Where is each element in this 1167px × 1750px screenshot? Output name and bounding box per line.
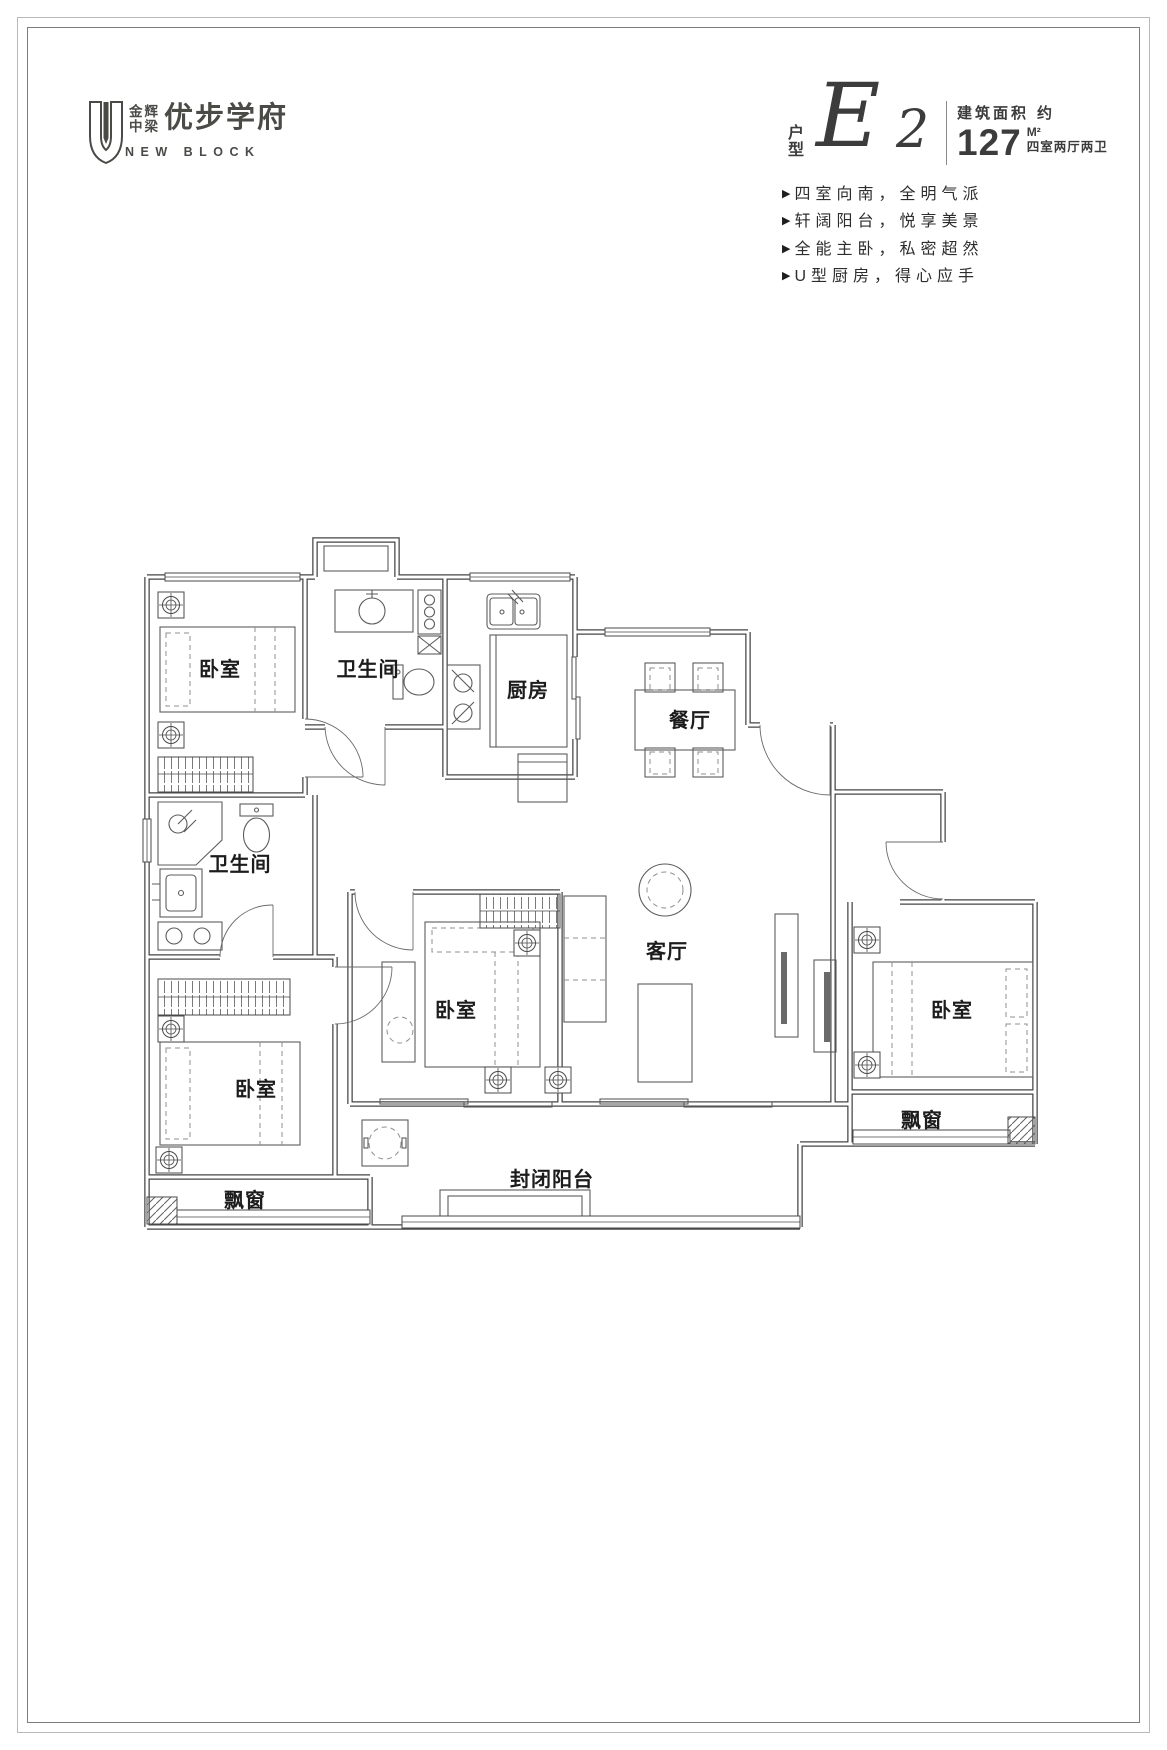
unit-number: 2: [896, 100, 929, 160]
area-label: 建筑面积约: [957, 102, 1108, 123]
tv-cabinet: [775, 914, 836, 1052]
brand-name-top: 金辉: [129, 104, 160, 119]
logo-u-shield-icon: [88, 101, 124, 170]
brand-name-bottom: 中梁: [129, 119, 160, 134]
wardrobe: [480, 894, 560, 928]
desk-chair: [382, 962, 415, 1062]
area-unit: M²: [1027, 126, 1108, 139]
planter: [639, 864, 691, 916]
bathroom-top-fixtures: [335, 590, 441, 699]
wardrobe: [158, 979, 290, 1015]
feature-item: ▶U型厨房，得心应手: [782, 263, 983, 290]
header-divider: [946, 101, 947, 165]
triangle-bullet-icon: ▶: [782, 181, 790, 208]
room-label-living: 客厅: [645, 939, 688, 963]
room-label-dining: 餐厅: [669, 708, 711, 732]
triangle-bullet-icon: ▶: [782, 263, 790, 290]
room-label-bedroom-top-left: 卧室: [199, 657, 241, 681]
brand-logo: 金辉 中梁 优步学府 NEW BLOCK: [88, 101, 348, 171]
room-label-bay-window-right: 飘窗: [901, 1108, 943, 1132]
bathroom-left-fixtures: [152, 802, 273, 950]
project-subtitle: NEW BLOCK: [125, 145, 261, 159]
room-label-bay-window-left: 飘窗: [224, 1188, 266, 1212]
room-label-balcony: 封闭阳台: [510, 1167, 594, 1191]
rug: [638, 984, 692, 1082]
feature-item: ▶轩阔阳台，悦享美景: [782, 208, 983, 235]
washing-machine: [362, 1120, 408, 1166]
feature-item: ▶全能主卧，私密超然: [782, 236, 983, 263]
flue-box: [324, 546, 388, 571]
layout-description: 四室两厅两卫: [1027, 140, 1108, 154]
feature-item: ▶四室向南，全明气派: [782, 181, 983, 208]
unit-header: 户 型 E 2 建筑面积约 127 M² 四室两厅两卫: [778, 88, 1118, 173]
sofa: [564, 896, 606, 1022]
unit-type-prefix: 户 型: [788, 125, 804, 159]
room-label-bathroom-left: 卫生间: [209, 853, 272, 876]
floor-plan-drawing: 卧室 卫生间 厨房 餐厅 卫生间 卧室 客厅 卧室 卧室 飘窗 飘窗 封闭阳台: [140, 532, 1040, 1242]
project-name: 优步学府: [164, 101, 288, 135]
feature-list: ▶四室向南，全明气派 ▶轩阔阳台，悦享美景 ▶全能主卧，私密超然 ▶U型厨房，得…: [782, 181, 983, 291]
unit-letter: E: [816, 66, 880, 166]
room-label-bedroom-right: 卧室: [931, 998, 973, 1022]
triangle-bullet-icon: ▶: [782, 208, 790, 235]
wardrobe: [158, 757, 253, 792]
room-label-bedroom-bottom-left: 卧室: [235, 1077, 277, 1101]
room-label-bathroom-top: 卫生间: [337, 658, 400, 681]
unit-info: 建筑面积约 127 M² 四室两厅两卫: [957, 102, 1108, 160]
area-value: 127: [957, 126, 1022, 160]
floorplan-page: 金辉 中梁 优步学府 NEW BLOCK 户 型 E 2 建筑面积约 127 M…: [0, 0, 1167, 1750]
bed: [160, 1042, 300, 1145]
triangle-bullet-icon: ▶: [782, 236, 790, 263]
room-label-bedroom-middle: 卧室: [435, 998, 477, 1022]
room-label-kitchen: 厨房: [507, 678, 549, 702]
